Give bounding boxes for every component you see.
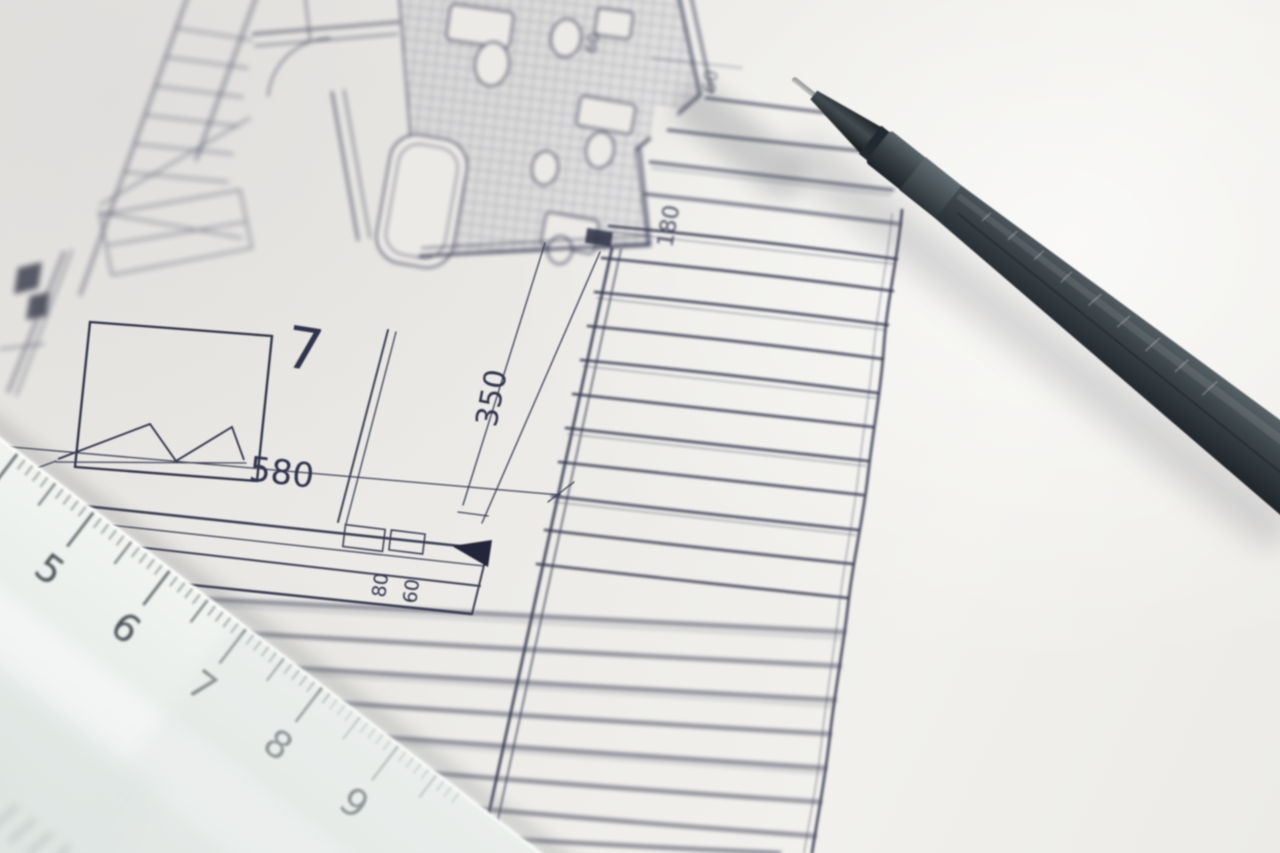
hall-wall: [253, 0, 400, 240]
deck: 180: [482, 203, 902, 853]
deck-plank: [559, 462, 863, 495]
deck-plank: [552, 496, 858, 530]
deck-divider-wall: [482, 248, 612, 845]
floor-plan-scene: 60 7 580 350 80 60: [0, 0, 1280, 853]
deck-plank: [602, 258, 893, 291]
deck-plank: [595, 292, 888, 325]
deck-plank: [581, 360, 878, 393]
deck-plank: [588, 326, 883, 359]
door-label-80: 80: [368, 572, 393, 599]
deck-plank: [545, 530, 853, 564]
deck-plank: [609, 226, 897, 259]
bed-fold-zigzag: [58, 424, 244, 461]
deck-plank: [573, 394, 873, 427]
bath-dimension-label: 60: [581, 31, 603, 54]
pen-shadow: [666, 54, 1280, 580]
door-arc: [268, 38, 330, 96]
dimension-350-label: 350: [469, 367, 514, 430]
door-label-60: 60: [399, 578, 424, 605]
staircase: [0, 0, 258, 396]
deck-label-180: 180: [653, 203, 685, 249]
room-number-label: 7: [281, 313, 328, 386]
dimension-580-label: 580: [247, 449, 316, 497]
deck-plank: [537, 564, 848, 598]
deck-plank: [566, 428, 868, 461]
photo-of-floor-plan: 60 7 580 350 80 60: [0, 0, 1280, 853]
